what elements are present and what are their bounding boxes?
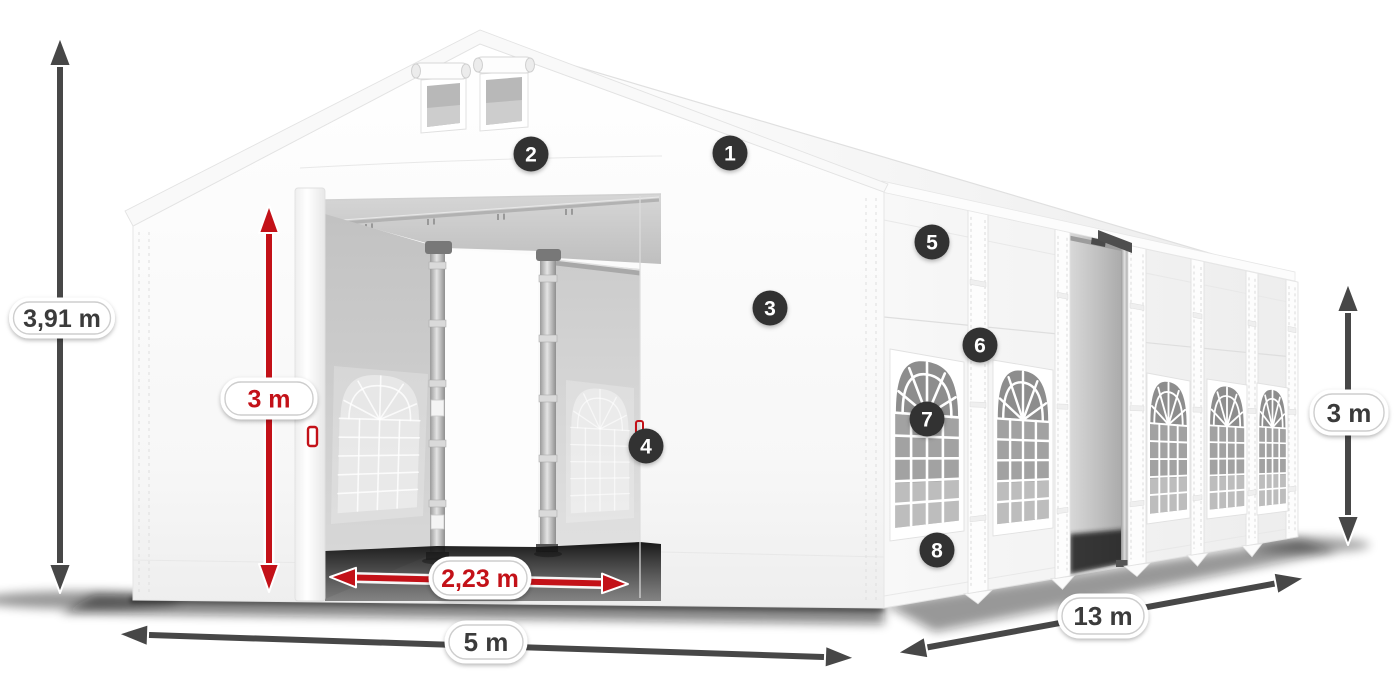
- tent-illustration: 1 2 3 4 5 6 7 8: [0, 0, 1400, 700]
- marker-8[interactable]: 8: [920, 533, 955, 568]
- marker-7-number: 7: [921, 409, 933, 432]
- marker-3[interactable]: 3: [753, 291, 788, 326]
- side-window: [993, 360, 1053, 536]
- wall-height-label: 3 m: [1327, 398, 1372, 428]
- entrance-height-label: 3 m: [247, 386, 290, 414]
- marker-5-number: 5: [926, 232, 938, 255]
- front-width-dimension: 5 m: [118, 624, 855, 667]
- marker-5[interactable]: 5: [915, 225, 950, 260]
- total-height-dimension: 3,91 m: [14, 37, 111, 593]
- marker-8-number: 8: [931, 540, 943, 563]
- entrance-width-label: 2,23 m: [441, 565, 519, 593]
- marker-2[interactable]: 2: [514, 137, 549, 172]
- interior-window: [566, 380, 634, 523]
- marker-1-number: 1: [724, 143, 736, 166]
- marker-3-number: 3: [764, 298, 776, 321]
- side-entrance-gap: [1070, 232, 1134, 574]
- entrance-interior: [325, 194, 661, 601]
- side-pole-strip: [1124, 245, 1150, 576]
- gable-vent-right: [474, 57, 535, 131]
- marker-4-number: 4: [640, 436, 652, 459]
- side-window: [1257, 383, 1288, 515]
- marker-6[interactable]: 6: [963, 328, 998, 363]
- interior-window: [331, 366, 428, 524]
- side-window: [1147, 373, 1190, 524]
- through-opening: [443, 249, 538, 552]
- wall-height-dimension: 3 m: [1314, 283, 1384, 545]
- side-length-label: 13 m: [1073, 601, 1132, 631]
- marker-7[interactable]: 7: [910, 402, 945, 437]
- front-width-label: 5 m: [464, 627, 509, 657]
- marker-6-number: 6: [974, 335, 986, 358]
- marker-1[interactable]: 1: [713, 136, 748, 171]
- side-pole-strip: [964, 210, 992, 604]
- marker-2-number: 2: [525, 144, 537, 167]
- marker-4[interactable]: 4: [629, 429, 664, 464]
- door-handle-left[interactable]: [308, 427, 317, 446]
- total-height-label: 3,91 m: [23, 305, 101, 333]
- side-window: [890, 349, 964, 541]
- tent-product-diagram: 1 2 3 4 5 6 7 8: [0, 0, 1400, 700]
- side-window: [1207, 379, 1247, 519]
